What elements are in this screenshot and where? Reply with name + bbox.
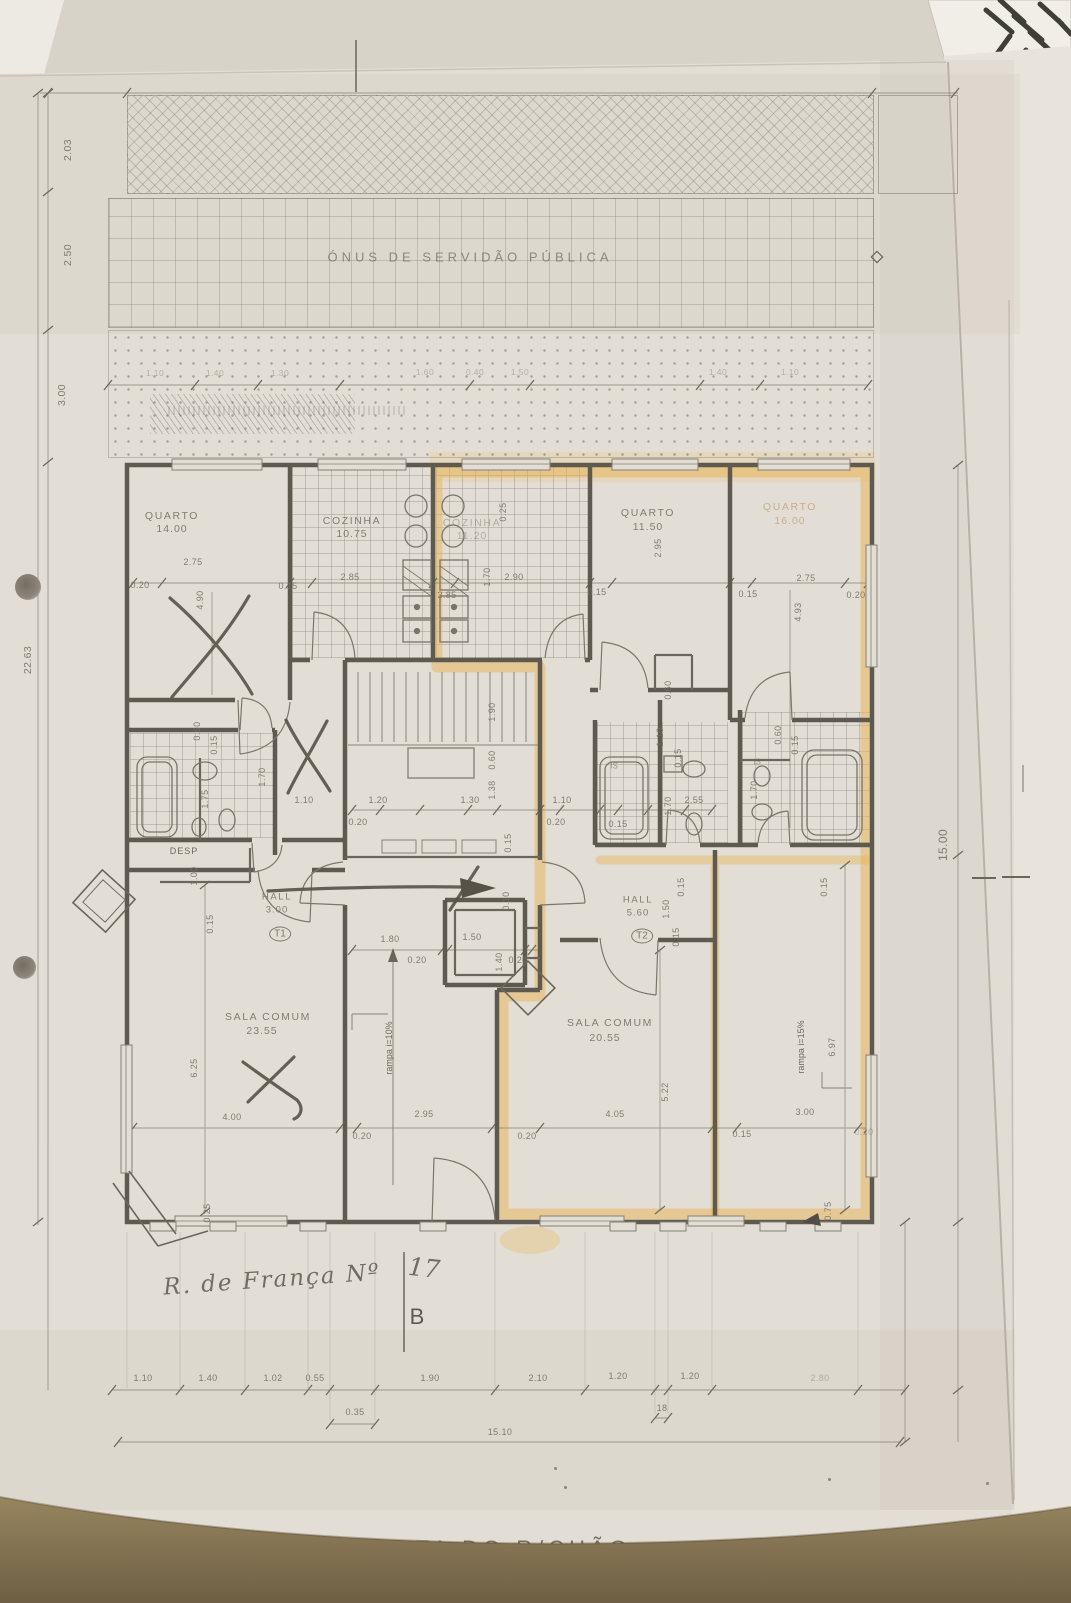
paper-speck [828, 1478, 831, 1481]
hole-punch-top [15, 574, 41, 600]
paper-speck [554, 1467, 557, 1470]
table-surface [0, 0, 1071, 1603]
paper-speck [564, 1486, 567, 1489]
photographed-floor-plan: ÓNUS DE SERVIDÃO PÚBLICA PLANTA DO R/CHÃ… [0, 0, 1071, 1603]
paper-speck [986, 1482, 989, 1485]
hole-punch-bottom [13, 956, 36, 979]
